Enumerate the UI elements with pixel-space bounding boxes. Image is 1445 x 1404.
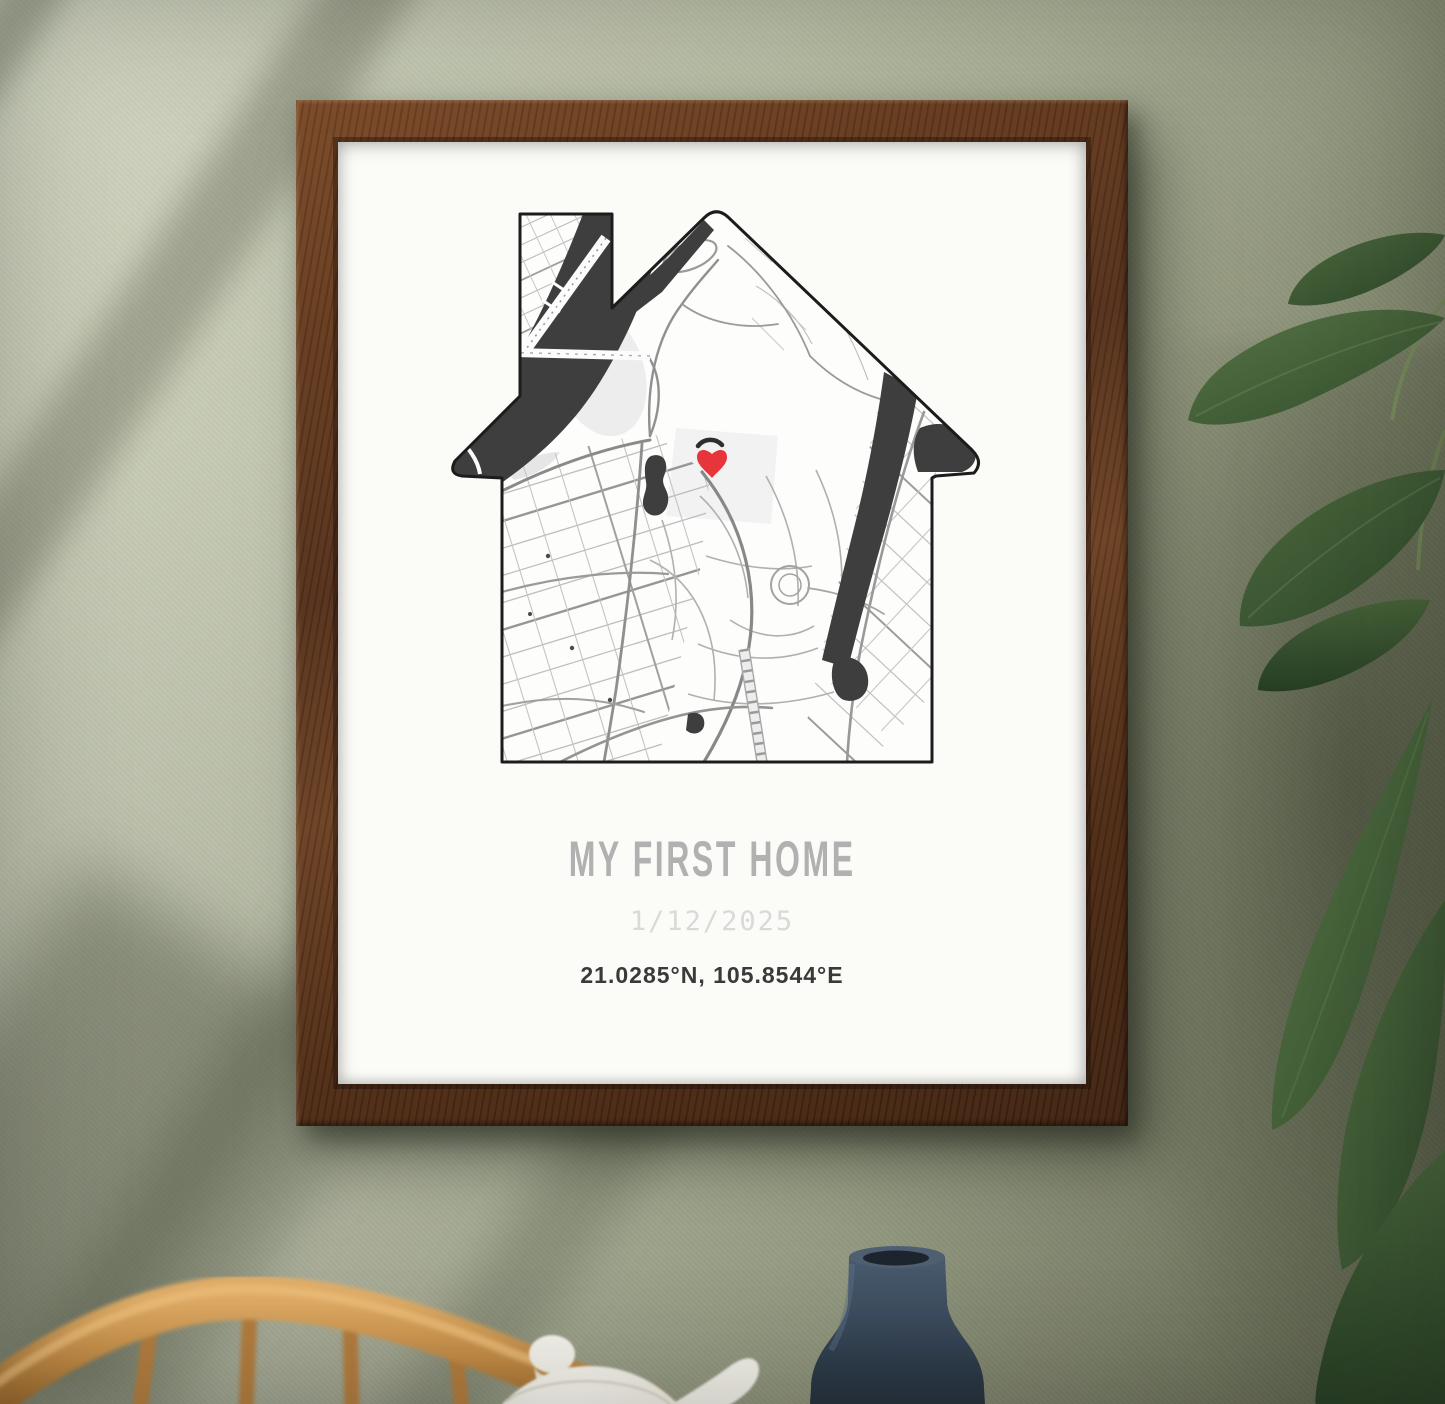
foreground-objects — [0, 1238, 1100, 1404]
poster-title: MY FIRST HOME — [338, 830, 1086, 888]
map-poster: MY FIRST HOME 1/12/2025 21.0285°N, 105.8… — [338, 142, 1086, 1084]
plant-leaves — [1188, 233, 1445, 1404]
blue-vase — [810, 1246, 985, 1404]
poster-date: 1/12/2025 — [338, 906, 1086, 937]
plant — [1140, 220, 1445, 1404]
house-map-art — [440, 200, 1000, 780]
poster-coordinates: 21.0285°N, 105.8544°E — [338, 962, 1086, 989]
picture-frame: MY FIRST HOME 1/12/2025 21.0285°N, 105.8… — [296, 100, 1128, 1126]
room-scene: MY FIRST HOME 1/12/2025 21.0285°N, 105.8… — [0, 0, 1445, 1404]
